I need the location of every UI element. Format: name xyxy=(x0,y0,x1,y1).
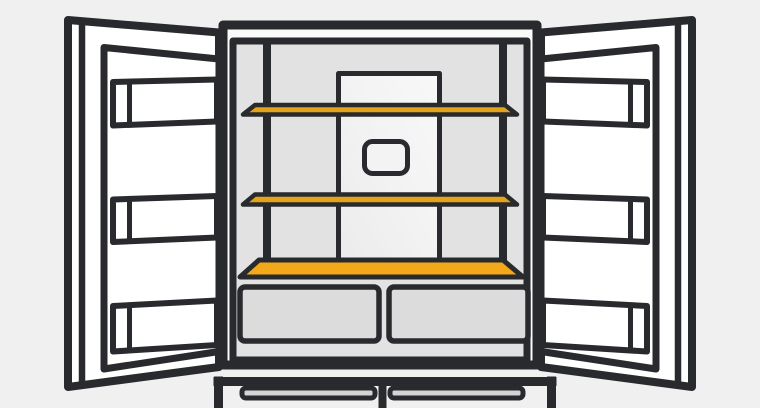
freezer-handle-left xyxy=(242,388,375,398)
right-door xyxy=(541,20,692,387)
middle-shelf xyxy=(243,195,517,205)
cabinet xyxy=(223,25,537,365)
ice-maker-box xyxy=(365,142,408,174)
left-door xyxy=(68,20,219,387)
refrigerator-illustration xyxy=(0,0,760,408)
freezer-handle-right xyxy=(390,388,523,398)
bottom-deck xyxy=(240,260,523,277)
upper-shelf xyxy=(243,105,517,115)
crisper-drawer-left xyxy=(240,287,379,341)
crisper-drawer-right xyxy=(389,287,528,341)
